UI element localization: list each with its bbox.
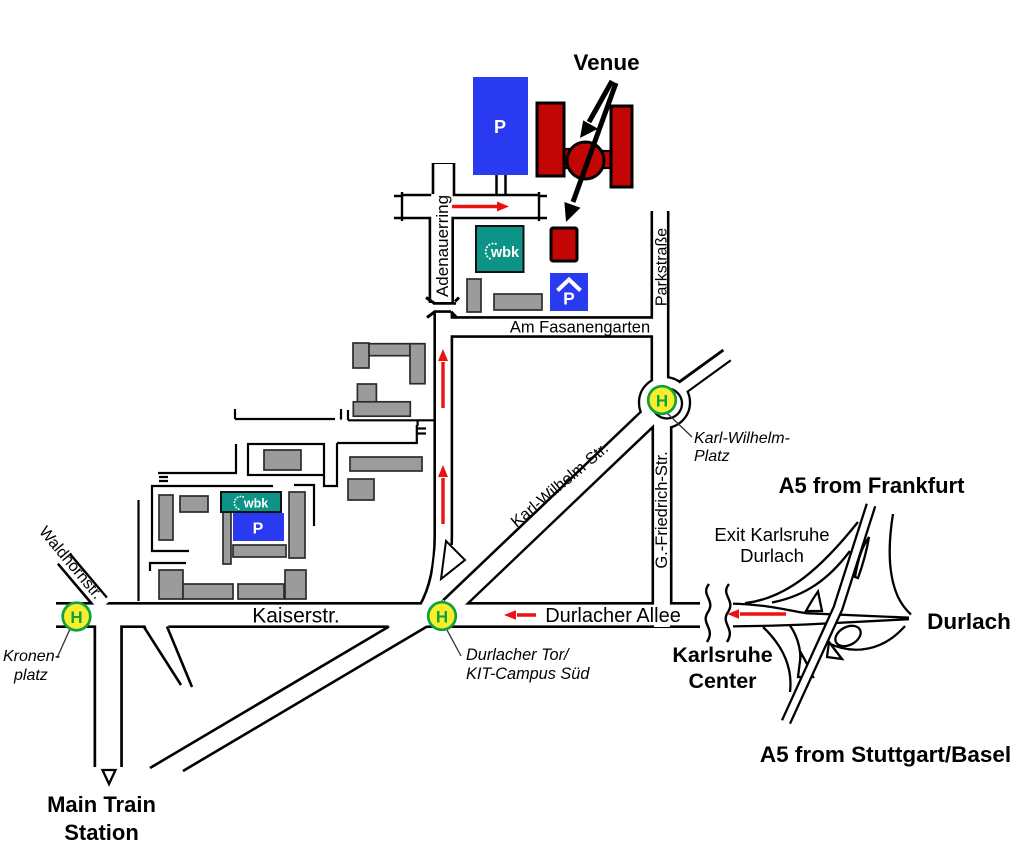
svg-text:Kronen-: Kronen-: [3, 648, 60, 665]
svg-text:Durlacher Tor/: Durlacher Tor/: [466, 646, 570, 664]
svg-text:P: P: [253, 521, 264, 538]
svg-text:Main Train: Main Train: [47, 792, 156, 817]
svg-text:Am Fasanengarten: Am Fasanengarten: [510, 319, 650, 337]
svg-text:Center: Center: [688, 669, 757, 693]
svg-text:P: P: [494, 117, 506, 137]
svg-text:Karlsruhe: Karlsruhe: [672, 643, 772, 667]
svg-text:Durlach: Durlach: [927, 609, 1011, 634]
svg-text:A5 from Frankfurt: A5 from Frankfurt: [779, 473, 965, 498]
svg-text:Karl-Wilhelm-: Karl-Wilhelm-: [694, 430, 790, 447]
svg-text:H: H: [656, 392, 668, 411]
svg-text:Exit Karlsruhe: Exit Karlsruhe: [714, 524, 829, 545]
svg-text:Parkstraße: Parkstraße: [654, 228, 671, 306]
svg-text:H: H: [436, 608, 448, 627]
svg-text:Durlacher Allee: Durlacher Allee: [545, 605, 681, 627]
svg-text:Waldhornstr.: Waldhornstr.: [35, 523, 105, 602]
svg-text:platz: platz: [13, 667, 48, 684]
svg-text:G.-Friedrich-Str.: G.-Friedrich-Str.: [653, 451, 671, 568]
svg-text:wbk: wbk: [490, 245, 520, 261]
svg-text:Platz: Platz: [694, 448, 730, 465]
svg-text:A5 from Stuttgart/Basel: A5 from Stuttgart/Basel: [760, 742, 1011, 767]
svg-text:Kaiserstr.: Kaiserstr.: [252, 605, 340, 628]
svg-text:Venue: Venue: [573, 50, 639, 75]
svg-text:Durlach: Durlach: [740, 545, 804, 566]
svg-text:Station: Station: [64, 820, 139, 845]
svg-text:P: P: [563, 289, 575, 309]
svg-text:H: H: [70, 608, 82, 627]
svg-text:KIT-Campus Süd: KIT-Campus Süd: [466, 665, 590, 683]
svg-text:wbk: wbk: [243, 497, 268, 511]
svg-text:Adenauerring: Adenauerring: [433, 195, 452, 297]
